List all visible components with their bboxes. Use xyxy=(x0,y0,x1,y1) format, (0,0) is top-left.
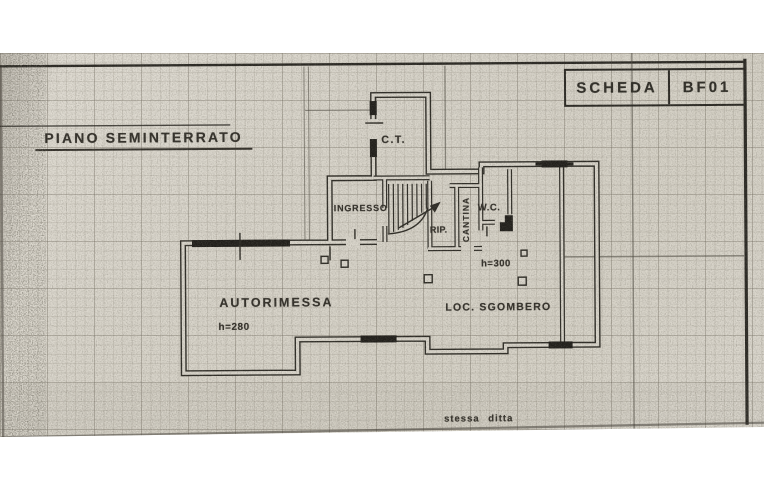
door-openings xyxy=(345,119,379,248)
floor-title: PIANO SEMINTERRATO xyxy=(35,129,252,151)
room-label-cellar: CANTINA xyxy=(461,189,471,249)
scan-edge-shadows xyxy=(0,62,764,438)
room-label-storage: LOC. SGOMBERO xyxy=(445,301,551,314)
staircase xyxy=(388,184,428,234)
wc-wall-block xyxy=(500,215,513,231)
scanned-floor-plan-page: PIANO SEMINTERRATO SCHEDA BF01 C.T. INGR… xyxy=(0,0,764,492)
floor-plan-drawing xyxy=(0,51,764,442)
room-label-closet: RIP. xyxy=(430,225,448,235)
room-label-entrance: INGRESSO xyxy=(334,203,388,213)
footer-note: stessa ditta xyxy=(444,413,513,424)
sheet-card-box: SCHEDA BF01 xyxy=(564,68,746,107)
sheet-card-code: BF01 xyxy=(670,70,744,104)
room-label-garage: AUTORIMESSA xyxy=(219,295,333,310)
sheet-card-label: SCHEDA xyxy=(566,70,670,105)
drawing-sheet: PIANO SEMINTERRATO SCHEDA BF01 C.T. INGR… xyxy=(0,51,764,442)
dim-storage-height: h=300 xyxy=(481,258,511,269)
room-label-boiler: C.T. xyxy=(381,134,421,146)
dim-garage-height: h=280 xyxy=(218,322,249,333)
scan-paper-area: PIANO SEMINTERRATO SCHEDA BF01 C.T. INGR… xyxy=(0,53,764,439)
page-margin-top xyxy=(0,0,764,53)
room-label-wc: W.C. xyxy=(478,202,501,213)
